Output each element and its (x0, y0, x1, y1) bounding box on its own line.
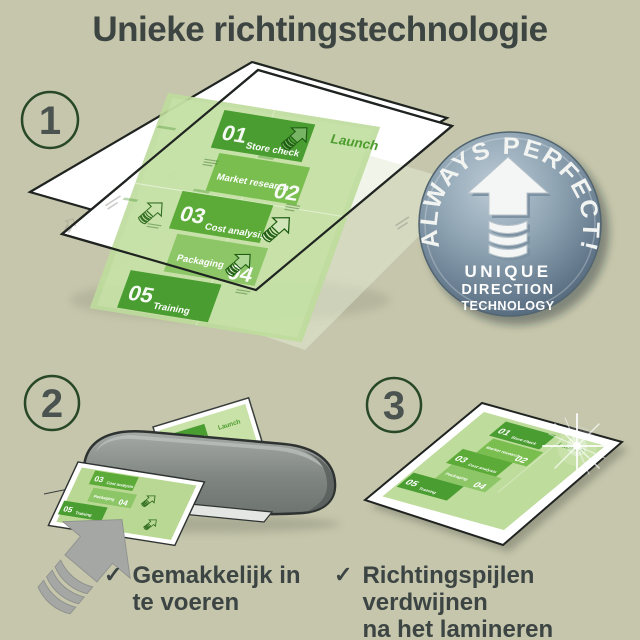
badge-line3: TECHNOLOGY (461, 299, 554, 313)
checklist-item-text: Gemakkelijk in te voeren (132, 562, 300, 616)
product-feature-graphic: Unieke richtingstechnologie (0, 0, 640, 640)
badge-line1: UNIQUE (464, 262, 551, 281)
badge-line2: DIRECTION (461, 282, 554, 298)
checklist-line: Richtingspijlen verdwijnen (362, 562, 634, 616)
checklist-line: na het lamineren (362, 616, 634, 640)
checklist-item-arrows-disappear: ✓ Richtingspijlen verdwijnen na het lami… (334, 562, 634, 640)
checklist-line: te voeren (132, 589, 300, 616)
step3-number: 3 (383, 384, 405, 428)
checklist-line: Gemakkelijk in (132, 562, 300, 589)
always-perfect-badge: ALWAYS PERFECT! UNIQUE DIRECTION TECHNOL… (415, 132, 609, 325)
step1-illustration: 01 Store check Market research 02 03 Cos… (30, 62, 470, 350)
check-icon: ✓ (334, 562, 352, 588)
step1-number: 1 (39, 99, 61, 143)
badge-caption: UNIQUE DIRECTION TECHNOLOGY (461, 262, 554, 313)
checklist-item-text: Richtingspijlen verdwijnen na het lamine… (362, 562, 634, 640)
check-icon: ✓ (104, 562, 122, 588)
step2-number: 2 (41, 382, 63, 426)
illustration-canvas: 01 Store check Market research 02 03 Cos… (0, 0, 640, 640)
checklist-item-easy-feed: ✓ Gemakkelijk in te voeren (104, 562, 314, 616)
